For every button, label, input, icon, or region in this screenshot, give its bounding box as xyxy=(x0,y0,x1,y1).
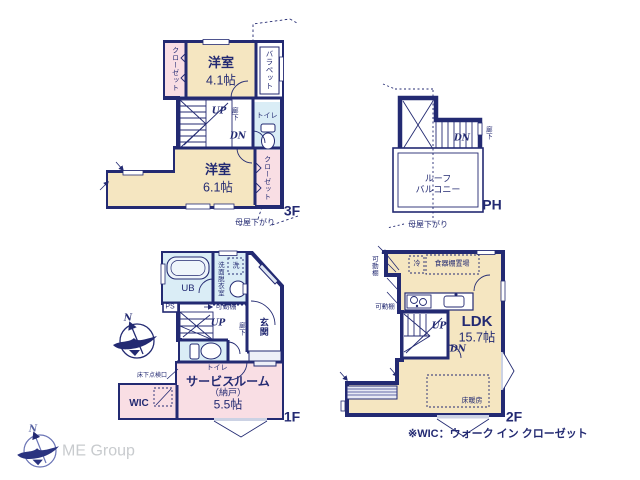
logo-text: ME Group xyxy=(62,444,135,461)
label-floor-heating-2f: 床暖房 xyxy=(462,397,483,404)
label-note-ph: 母屋下がり xyxy=(408,221,448,229)
label-dn-3f: DN xyxy=(230,132,246,141)
label-floor-ph: PH xyxy=(482,198,501,213)
label-compass-n-1f: N xyxy=(124,314,132,323)
label-ub-1f: UB xyxy=(181,284,194,294)
label-room1-size-3f: 4.1帖 xyxy=(206,74,236,87)
wic-note: ※WIC：ウォーク イン クローゼット xyxy=(408,429,588,441)
label-ldk-2f: LDK xyxy=(462,314,493,330)
label-fridge-2f: 冷 xyxy=(414,260,421,267)
label-toilet-3f: トイレ xyxy=(257,112,278,119)
label-hall-3f: 廊下 xyxy=(230,107,237,121)
label-hall-ph: 廊下 xyxy=(484,126,491,140)
label-floor-1f: 1F xyxy=(284,410,300,425)
label-ps-1f: PS xyxy=(165,303,174,310)
plan-ph xyxy=(383,84,483,228)
label-up-2f: UP xyxy=(432,322,447,331)
label-cupboard-2f: 食器棚置場 xyxy=(435,260,470,267)
label-shelf-mid-2f: 可動棚 xyxy=(375,305,395,312)
label-floor-2f: 2F xyxy=(506,410,522,425)
label-up-1f: UP xyxy=(211,319,226,328)
compass-icon xyxy=(113,323,157,358)
label-dn-ph: DN xyxy=(454,134,470,143)
floorplan-drawing xyxy=(0,0,640,480)
label-toilet-1f: トイレ xyxy=(207,364,228,371)
label-entrance-1f: 玄関 xyxy=(258,318,267,337)
floorplan-page: クローゼット 洋室 4.1帖 バラペット UP 廊下 DN トイレ 洋室 6.1… xyxy=(0,0,640,480)
label-wic-1f: WIC xyxy=(129,399,148,410)
bathtub xyxy=(167,257,209,279)
kitchen-counter xyxy=(405,293,473,310)
label-floor-3f: 3F xyxy=(284,204,300,219)
label-hall-1f: 廊下 xyxy=(237,322,244,336)
label-ldk-size-2f: 15.7帖 xyxy=(459,331,496,344)
logo-compass-n: N xyxy=(29,425,37,434)
label-closet-right-3f: クローゼット xyxy=(263,156,270,201)
label-washroom-1f: 洗面脱衣室 xyxy=(216,262,223,297)
label-balcony-1-ph: ルーフ xyxy=(425,174,451,183)
label-balcony-2-ph: バルコニー xyxy=(416,185,461,194)
label-shelf-1f: 可動棚 xyxy=(216,303,237,310)
label-service-sub-1f: （納戸） xyxy=(210,388,246,397)
label-dn-2f: DN xyxy=(450,345,466,354)
label-service-size-1f: 5.5帖 xyxy=(214,399,243,412)
label-parapet-3f: バラペット xyxy=(265,50,273,90)
label-washer-1f: 洗 xyxy=(233,262,240,269)
label-room1-name-3f: 洋室 xyxy=(208,56,234,70)
label-note-3f: 母屋下がり xyxy=(235,219,275,227)
toilet-fixture-1f xyxy=(190,343,221,359)
label-room2-name-3f: 洋室 xyxy=(205,163,231,177)
label-closet-left-3f: クローゼット xyxy=(171,47,178,92)
logo-compass-icon xyxy=(17,433,59,467)
label-floor-hatch-1f: 床下点検口 xyxy=(137,373,167,379)
label-up-3f: UP xyxy=(212,107,227,116)
label-shelf-top-2f: 可動棚 xyxy=(370,256,377,277)
label-room2-size-3f: 6.1帖 xyxy=(203,181,233,194)
striped-deck xyxy=(347,386,397,399)
